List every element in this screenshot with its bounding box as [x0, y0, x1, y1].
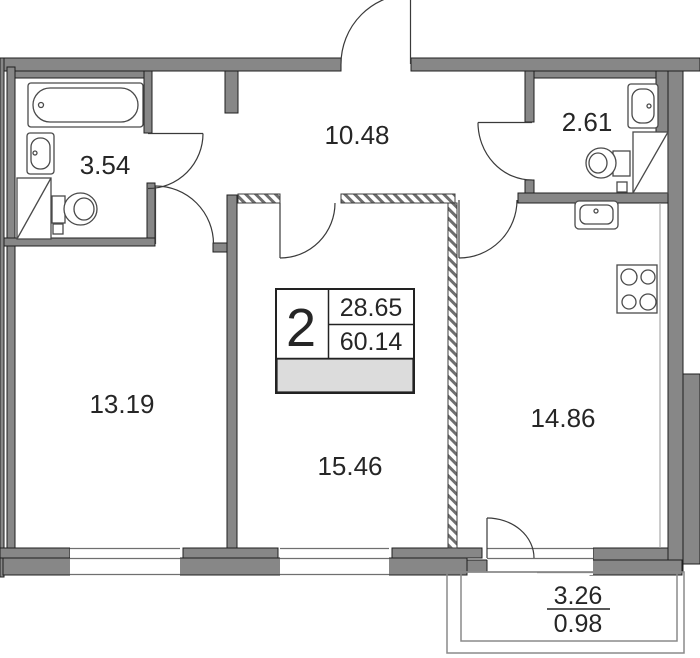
toilet-bathroom1: [52, 193, 97, 234]
label-hallway-area: 10.48: [324, 120, 389, 150]
wall-bottom-mid-inner: [183, 548, 278, 558]
window-bedroom: [70, 547, 180, 576]
balcony-door-threshold: [487, 547, 537, 560]
burner: [640, 294, 656, 310]
wall-bath2-left-upper: [525, 71, 534, 122]
wall-bottom-mid-outer: [179, 558, 283, 575]
wall-bedroom-door-stub: [213, 243, 227, 252]
wall-left-outer: [0, 58, 4, 577]
stamp-gray-bar: [277, 359, 413, 392]
kitchen-door: [459, 200, 517, 258]
wall-bottom-left-outer: [3, 558, 76, 575]
label-bedroom-area: 13.19: [89, 389, 154, 419]
hatched-wall-top-1: [238, 194, 280, 203]
label-kitchen-area: 14.86: [530, 403, 595, 433]
toilet-bathroom2: [586, 148, 630, 192]
window-living: [280, 547, 389, 576]
burner: [622, 295, 636, 309]
burner: [641, 270, 655, 284]
wall-bottom-kitchen-inner: [593, 548, 668, 560]
wall-bottom-right-inner: [392, 548, 482, 558]
wall-bottom-step: [467, 560, 487, 572]
window-kitchen: [537, 547, 593, 575]
floor-plan: 2 28.65 60.14 3.26 0.98 3.54 10.48 2.61 …: [0, 0, 700, 658]
balcony-area: 3.26: [554, 582, 603, 610]
bathroom2-door: [478, 123, 532, 181]
wall-bath1-right-lower: [147, 183, 155, 238]
wall-bottom-left-inner: [0, 548, 70, 558]
wall-top-left: [0, 58, 341, 71]
balcony-area-reduced: 0.98: [554, 610, 603, 638]
stove: [617, 265, 657, 313]
stamp-living-area: 28.65: [340, 294, 403, 322]
bathroom2-fixtures: [586, 84, 668, 193]
wall-right-outer: [668, 71, 683, 572]
living-room-door: [280, 203, 335, 258]
label-bathroom1-area: 3.54: [80, 150, 131, 180]
wall-entry-stub: [225, 71, 238, 113]
sink-bathroom1: [27, 133, 54, 174]
stamp-rooms-count: 2: [286, 298, 316, 358]
hatched-wall-top-2: [341, 194, 455, 203]
kitchen-fixtures: [575, 201, 660, 548]
wall-left-inner: [7, 67, 15, 553]
wall-room-divider: [227, 195, 237, 553]
entrance-door: [341, 0, 411, 64]
label-living-room-area: 15.46: [317, 451, 382, 481]
label-bathroom2-area: 2.61: [562, 107, 613, 137]
bathtub: [28, 83, 143, 127]
wall-bath1-right-upper: [144, 71, 152, 133]
shower-bathroom1: [17, 178, 51, 239]
apartment-stamp: 2 28.65 60.14: [276, 289, 414, 393]
wall-bath1-top: [15, 71, 144, 78]
burner: [621, 269, 637, 285]
hatched-wall-vertical: [448, 203, 457, 548]
balcony: 3.26 0.98: [447, 572, 684, 653]
floor-plan-svg: 2 28.65 60.14 3.26 0.98 3.54 10.48 2.61 …: [0, 0, 700, 658]
wall-top-right: [411, 58, 700, 71]
shower-bathroom2: [633, 132, 668, 193]
wall-neighbor-strip: [683, 374, 700, 564]
sink-bathroom2: [628, 84, 658, 128]
bathroom1-door: [148, 134, 203, 189]
stamp-total-area: 60.14: [340, 328, 403, 356]
wall-bath2-top: [534, 71, 658, 78]
bathtub-drain: [39, 103, 44, 108]
kitchen-sink: [575, 201, 618, 229]
bedroom-door: [156, 186, 214, 244]
